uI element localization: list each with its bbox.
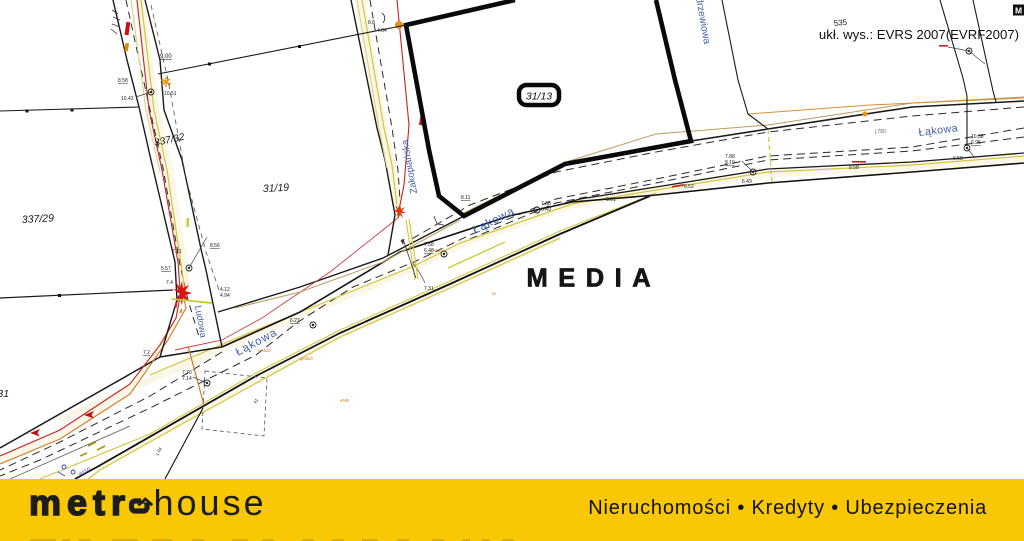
svg-text:j.780: j.780 [874,129,886,135]
svg-text:gA110: gA110 [300,356,313,361]
svg-text:8.56: 8.56 [210,243,220,249]
svg-text:7.4: 7.4 [166,280,173,286]
svg-text:31/19: 31/19 [263,182,290,195]
svg-text:house: house [154,482,267,523]
svg-text:Nieruchomości • Kredyty • Ubez: Nieruchomości • Kredyty • Ubezpieczenia [588,497,987,519]
svg-text:6.95: 6.95 [971,140,981,146]
svg-text:M: M [1015,6,1022,16]
svg-text:8.52: 8.52 [684,184,694,190]
svg-text:ukł. wys.: EVRS 2007(EVRF2007): ukł. wys.: EVRS 2007(EVRF2007) [819,27,1019,42]
svg-text:8.01: 8.01 [606,197,616,203]
svg-text:eNN: eNN [340,398,349,403]
svg-text:5.57: 5.57 [161,266,171,272]
svg-text:10.43: 10.43 [121,96,134,102]
svg-text:6.58: 6.58 [953,156,963,162]
svg-text:gA110: gA110 [258,348,271,353]
svg-text:8.8: 8.8 [368,20,375,26]
svg-text:6.27: 6.27 [290,318,300,324]
svg-text:4.94: 4.94 [220,293,230,299]
svg-text:MEDIA: MEDIA [527,265,662,293]
svg-text:9.00: 9.00 [160,54,172,60]
svg-text:4.64: 4.64 [377,28,387,34]
svg-text:337/31: 337/31 [0,388,9,400]
svg-text:6.49: 6.49 [742,179,752,185]
svg-text:metr: metr [29,482,131,523]
svg-text:8.10: 8.10 [725,160,735,166]
svg-text:gA110: gA110 [430,248,443,253]
svg-text:31/13: 31/13 [526,91,552,103]
svg-text:337/29: 337/29 [22,212,55,226]
svg-text:tA: tA [492,291,496,296]
svg-text:8.58: 8.58 [849,165,859,171]
svg-text:7.2: 7.2 [143,350,150,356]
svg-text:8.11: 8.11 [461,195,471,201]
svg-text:8.58: 8.58 [118,78,128,84]
svg-text:7.71: 7.71 [172,249,182,255]
svg-text:6.49: 6.49 [541,207,551,213]
svg-text:7.14: 7.14 [182,376,192,382]
